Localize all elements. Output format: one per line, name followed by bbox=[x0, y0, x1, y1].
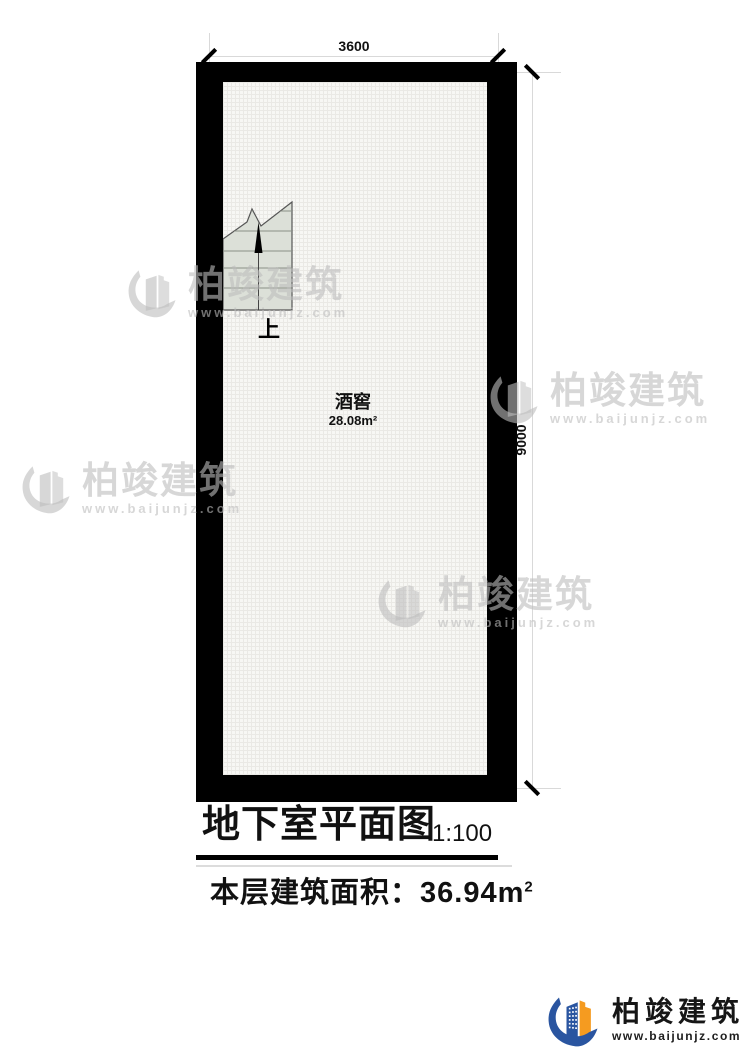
floorplan-page: { "plan": { "dim_top": "3600", "dim_righ… bbox=[0, 0, 750, 1062]
floor-area-value: 本层建筑面积：36.94m bbox=[210, 877, 524, 909]
company-url: www.baijunjz.com bbox=[612, 1030, 744, 1042]
drawing-scale: 1:100 bbox=[432, 820, 492, 848]
building-logo-icon bbox=[20, 458, 74, 518]
watermark-brand: 柏竣建筑 bbox=[550, 372, 710, 409]
dim-extension-line-right-top bbox=[517, 72, 561, 73]
company-name: 柏竣建筑 bbox=[612, 998, 744, 1026]
watermark: 柏竣建筑 www.baijunjz.com bbox=[488, 368, 710, 428]
title-underline-shadow bbox=[196, 865, 512, 867]
page-title: 地下室平面图 bbox=[202, 804, 436, 848]
room-label: 酒窖 28.08m² bbox=[303, 392, 403, 429]
watermark-url: www.baijunjz.com bbox=[550, 412, 710, 425]
watermark-text: 柏竣建筑 www.baijunjz.com bbox=[550, 372, 710, 425]
building-logo-icon bbox=[545, 990, 603, 1050]
floor-area-text: 本层建筑面积：36.94m2 bbox=[210, 869, 534, 911]
room-name: 酒窖 bbox=[303, 392, 403, 413]
staircase bbox=[223, 200, 293, 311]
company-logo-text: 柏竣建筑 www.baijunjz.com bbox=[612, 998, 744, 1042]
dim-line-top bbox=[209, 56, 499, 57]
stair-direction-label: 上 bbox=[252, 319, 286, 341]
company-logo: 柏竣建筑 www.baijunjz.com bbox=[545, 990, 744, 1050]
room-area: 28.08m² bbox=[303, 414, 403, 429]
dim-line-right bbox=[532, 72, 533, 788]
stair-outline bbox=[223, 202, 292, 310]
dim-extension-line-right-bottom bbox=[517, 788, 561, 789]
dim-label-top: 3600 bbox=[338, 38, 369, 54]
dim-label-right: 9000 bbox=[513, 424, 529, 455]
title-underline bbox=[196, 855, 498, 860]
building-logo-icon bbox=[126, 262, 180, 322]
floor-area-superscript: 2 bbox=[524, 878, 533, 895]
